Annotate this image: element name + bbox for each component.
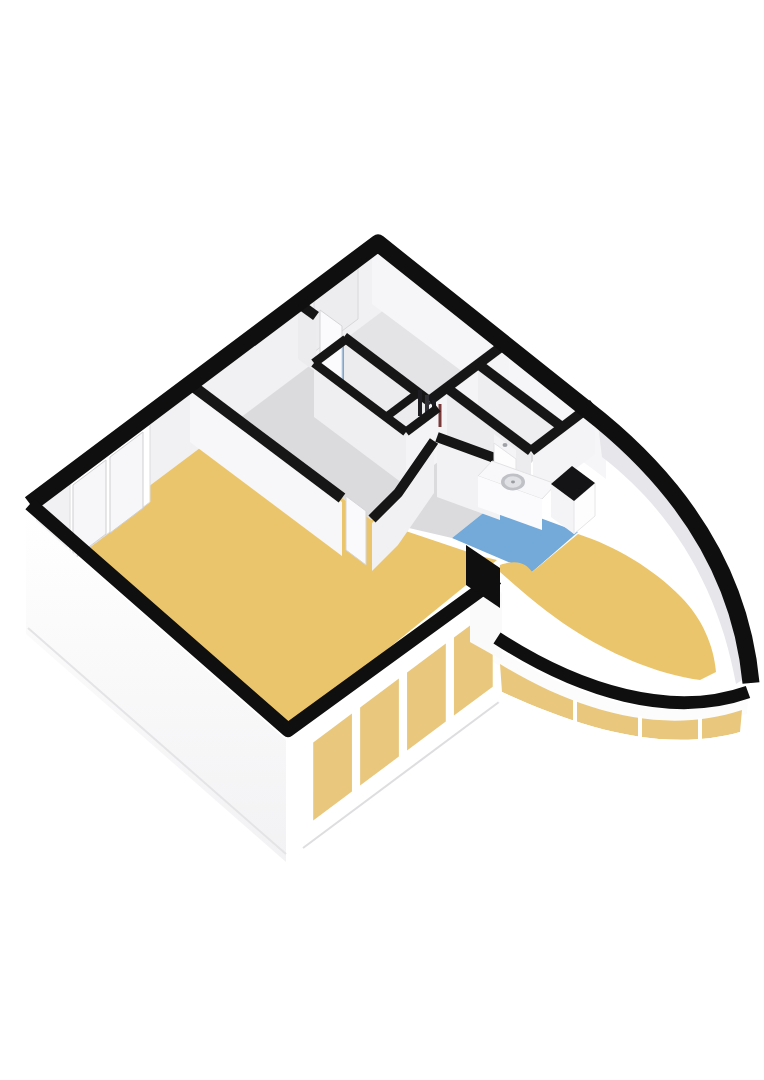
floorplan-canvas: Isometric 3D floor plan of an apartment … (0, 0, 764, 1080)
washer-knob (503, 443, 508, 447)
floorplan-3d-rendering (0, 0, 764, 1080)
sink-drain (511, 481, 515, 484)
